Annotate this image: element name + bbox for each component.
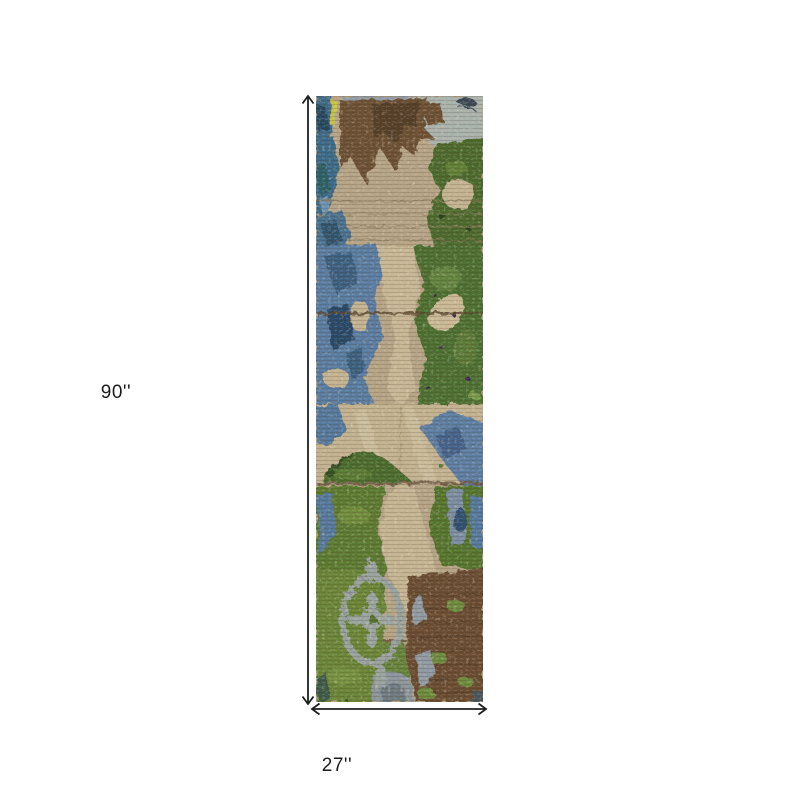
height-dimension-label: 90'' [86, 382, 146, 404]
height-dimension-arrow [300, 93, 316, 707]
width-dimension-arrow [308, 701, 490, 717]
width-dimension-label: 27'' [307, 755, 367, 777]
rug-artwork [316, 96, 483, 702]
rug-image [316, 96, 483, 702]
product-dimension-diagram: 90'' 27'' [0, 0, 800, 800]
